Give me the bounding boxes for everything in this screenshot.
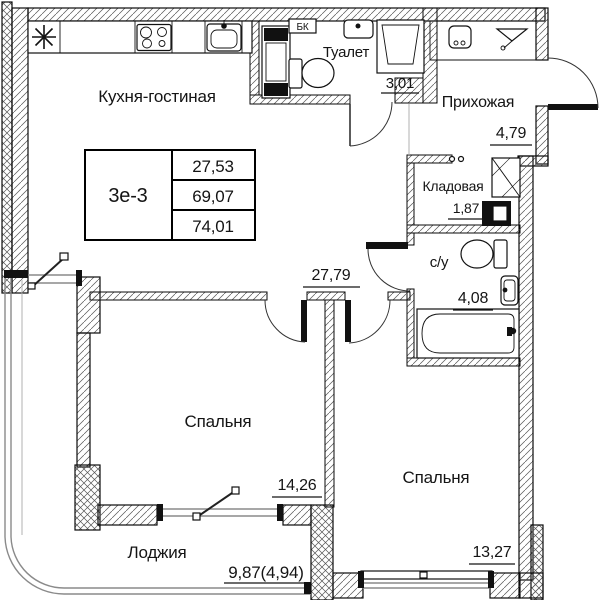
fridge-asterisk-icon [32,25,56,49]
floorplan-page: БК [0,0,601,600]
toilet-sink-icon [344,20,373,38]
bedroom2-window [358,571,494,588]
floorplan-canvas: БК [0,0,601,600]
valve-icon [497,29,527,50]
bedroom1-balcony-window [157,487,283,521]
kitchen-living-name: Кухня-гостиная [98,87,215,106]
hallway-area: 4,79 [496,125,527,142]
bedroom2-door [345,300,390,343]
loggia-name: Лоджия [127,543,186,562]
vent-shaft [492,158,520,197]
storage-fixtures [482,158,520,226]
kitchen-loggia-window [28,253,82,289]
unit-info-table: 3е-3 27,53 69,07 74,01 [85,150,255,240]
unit-stat-living: 27,53 [192,157,234,176]
unit-stat-area: 69,07 [192,187,234,206]
bathroom-area: 4,08 [458,290,489,307]
bathroom-wc-icon [461,240,507,268]
toilet-name: Туалет [323,44,370,61]
bedroom2-name: Спальня [403,468,470,487]
entrance-door [548,58,598,110]
bathroom-door [366,242,410,291]
unit-id: 3е-3 [108,185,147,207]
loggia-area: 9,87(4,94) [228,563,304,582]
toilet-area: 3,01 [386,75,414,92]
utility-cabinet [262,26,290,98]
vent-box [482,201,511,226]
ac-unit-box: БК [289,19,316,33]
storage-door-pivots [450,157,464,162]
water-heater-icon [449,26,471,48]
ac-unit-label: БК [297,22,309,33]
hallway-name: Прихожая [442,94,515,111]
toilet-door [350,102,392,146]
storage-area: 1,87 [453,200,480,216]
bedroom1-door [265,300,307,342]
storage-name: Кладовая [422,178,483,194]
bathroom-sink-icon [501,276,518,305]
bedroom2-area: 13,27 [472,544,511,561]
bedroom1-area: 14,26 [277,477,316,494]
kitchen-living-area: 27,79 [311,267,350,284]
stove-icon [137,25,171,51]
hallway-icons [449,26,527,50]
toilet-wc-icon [289,59,334,89]
kitchen-counter [28,20,252,53]
kitchen-sink-icon [207,20,241,51]
bedroom1-name: Спальня [185,412,252,431]
bathroom-name: с/у [430,254,449,271]
shower-cabin-icon [377,20,424,73]
wall-end-cap [4,270,28,278]
bathtub-icon [417,309,519,358]
unit-stat-total: 74,01 [192,217,234,236]
